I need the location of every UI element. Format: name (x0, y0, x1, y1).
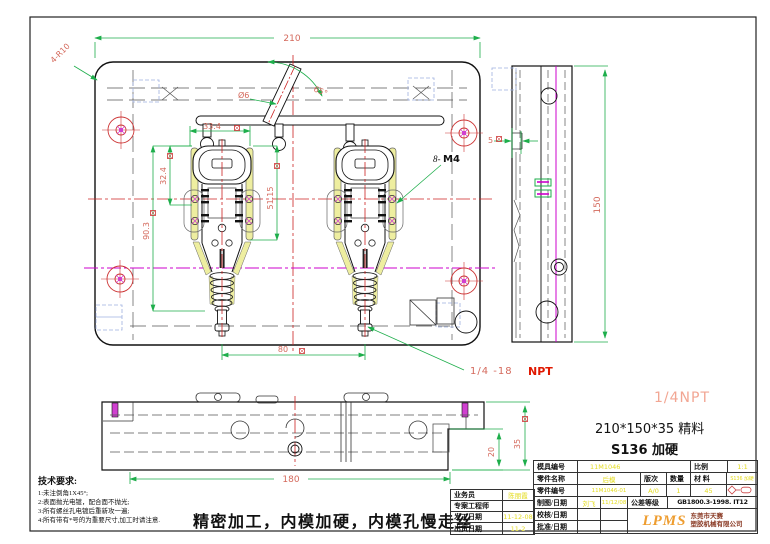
part-no-label: 零件编号 (534, 485, 578, 497)
process-note: 精密加工，内模加硬，内模孔慢走丝 (193, 508, 473, 532)
dim-80: 80 (278, 345, 288, 354)
left-table-label: 出货日期 (451, 523, 503, 534)
thread-callout: M4 (443, 154, 460, 165)
dim-4r10: 4-R10 (49, 42, 72, 65)
tech-title: 技术要求: (38, 474, 208, 487)
left-table-label: 业务员 (451, 490, 503, 501)
draw-name-value: 刘飞 (578, 497, 601, 509)
corner-bolt-hole (455, 311, 477, 333)
runner-system (196, 64, 444, 155)
side-view (492, 66, 572, 342)
left-table-value: 11-2 (503, 523, 534, 534)
left-table-value: 陈丽霞 (503, 490, 534, 501)
dim-32-4: 32.4 (159, 167, 168, 185)
guide-pin-target (102, 111, 140, 149)
check-name-cell (578, 509, 601, 521)
dim-5: 5 (488, 136, 493, 145)
company-name: 东莞市天赛 塑胶机械有限公司 (691, 513, 743, 529)
mat-value: 45 (691, 485, 727, 497)
technical-requirements: 技术要求: 1:未注倒角1X45°; 2:表面抛光电镀，配合面不抛光; 3:所有… (38, 474, 208, 525)
rev-value: A/0 (641, 485, 667, 497)
rev-label: 版次 (641, 473, 667, 485)
left-table-label: 专案工程师 (451, 501, 503, 512)
dim-150: 150 (593, 196, 603, 213)
dim-35: 35 (513, 439, 522, 449)
cavity-1 (184, 139, 260, 338)
plan-view (84, 55, 496, 352)
qty-label: 数量 (667, 473, 691, 485)
drawing-sheet: { "drawing": { "dims": { "width_top": "2… (0, 0, 770, 544)
scale-label: 比例 (691, 461, 728, 473)
mold-no-value: 11M1046 (578, 461, 691, 473)
check-date-label: 校核/日期 (534, 509, 578, 521)
mold-no-label: 模具编号 (534, 461, 578, 473)
mat-label: 材 料 (691, 473, 727, 485)
part-no-value: 11M1046-01 (578, 485, 641, 497)
projection-symbol (727, 485, 757, 497)
company-line-1: 东莞市天赛 (691, 513, 743, 521)
tolerance-label: 公差等级 (628, 497, 668, 509)
logo-cell: LPMS 东莞市天赛 塑胶机械有限公司 (628, 509, 757, 533)
guide-pin-target (445, 114, 483, 152)
left-table-label: 发工日期 (451, 512, 503, 523)
draw-date-label: 制图/日期 (534, 497, 578, 509)
cavity-2 (327, 139, 403, 338)
projection-angle-icon (727, 485, 753, 495)
npt-word: NPT (528, 365, 553, 378)
approve-date-cell (601, 521, 628, 533)
tolerance-value: GB1800.3-1998. IT12 (668, 497, 757, 509)
left-table-value: 11-12-08 (503, 512, 534, 523)
tech-item: 4:所有带有*号的为重要尺寸,加工时请注意. (38, 516, 208, 525)
tech-item: 2:表面抛光电镀，配合面不抛光; (38, 498, 208, 507)
dim-33-4: 33.4 (203, 122, 221, 131)
tech-item: 3:所有螺丝孔电镀后重新攻一遍; (38, 507, 208, 516)
bottom-view (102, 393, 484, 470)
qty-value: 1 (667, 485, 691, 497)
left-table-value (503, 501, 534, 512)
check-date-cell (601, 509, 628, 521)
dim-65deg: 65° (312, 85, 329, 99)
approve-date-label: 批准/日期 (534, 521, 578, 533)
part-name-value: 后模 (578, 473, 641, 485)
approve-name-cell (578, 521, 601, 533)
spec-material-text: S136 加硬 (611, 439, 678, 458)
scale-value: 1:1 (728, 461, 757, 473)
dim-51-15: 51.15 (266, 187, 275, 210)
lpms-logo: LPMS (642, 513, 686, 530)
dim-20: 20 (487, 447, 496, 457)
dim-180: 180 (282, 475, 299, 485)
left-info-table: 业务员 陈丽霞 专案工程师 发工日期 11-12-08 出货日期 11-2 (450, 489, 535, 535)
dim-210: 210 (283, 34, 300, 44)
part-name-label: 零件名称 (534, 473, 578, 485)
npt-side-label: 1/4NPT (654, 390, 710, 406)
company-line-2: 塑胶机械有限公司 (691, 521, 743, 529)
dim-sprue-dia: Ø6 (238, 90, 249, 100)
draw-date-value: 11/12/08 (601, 497, 628, 509)
mat-note-value: S136 加硬 (727, 473, 757, 485)
npt-fitting (410, 298, 454, 325)
dim-90-3: 90.3 (142, 222, 151, 240)
tech-item: 1:未注倒角1X45°; (38, 489, 208, 498)
spec-size-text: 210*150*35 精料 (595, 418, 704, 437)
title-block: 模具编号 11M1046 比例 1:1 零件名称 后模 版次 数量 材 料 S1… (533, 460, 758, 534)
npt-leader-text: 1/4 -18 (470, 366, 513, 377)
thread-callout-prefix: 8- (433, 154, 441, 164)
